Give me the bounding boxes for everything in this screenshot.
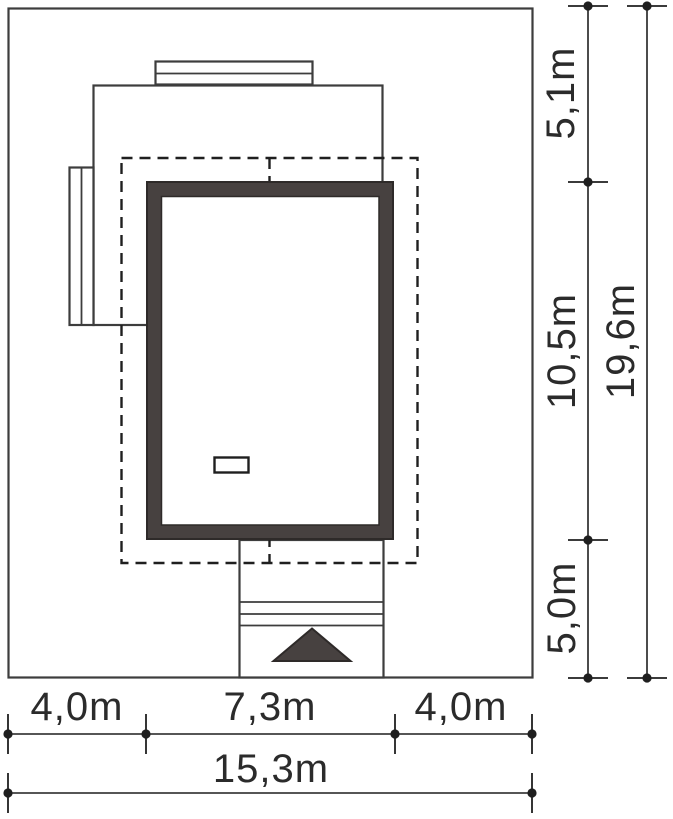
dimension-dot: [642, 673, 651, 682]
dimension-dot: [527, 788, 536, 797]
dimension-dot: [527, 729, 536, 738]
dimension-dot: [583, 673, 592, 682]
dim-label-plot-depth-total: 19,6m: [601, 283, 641, 399]
dimension-dot: [141, 729, 150, 738]
dim-label-bottom-setback: 5,0m: [542, 562, 582, 655]
dimension-dot: [583, 535, 592, 544]
site-plan-page: 4,0m 7,3m 4,0m 15,3m 5,1m 10,5m 5,0m 19,…: [0, 0, 673, 819]
dimension-dot: [583, 1, 592, 10]
wall-opening: [215, 458, 249, 473]
dim-label-top-setback: 5,1m: [541, 47, 581, 140]
dimension-dot: [3, 788, 12, 797]
dim-label-plot-width-total: 15,3m: [213, 749, 329, 789]
dim-label-house-width: 7,3m: [224, 687, 317, 727]
house-wall-inner: [162, 197, 380, 526]
dimension-dot: [642, 1, 651, 10]
dim-label-house-depth: 10,5m: [542, 293, 582, 409]
dimension-dot: [583, 177, 592, 186]
dimension-dot: [390, 729, 399, 738]
dim-label-left-setback: 4,0m: [31, 687, 124, 727]
dimension-dot: [3, 729, 12, 738]
dim-label-right-setback: 4,0m: [415, 687, 508, 727]
